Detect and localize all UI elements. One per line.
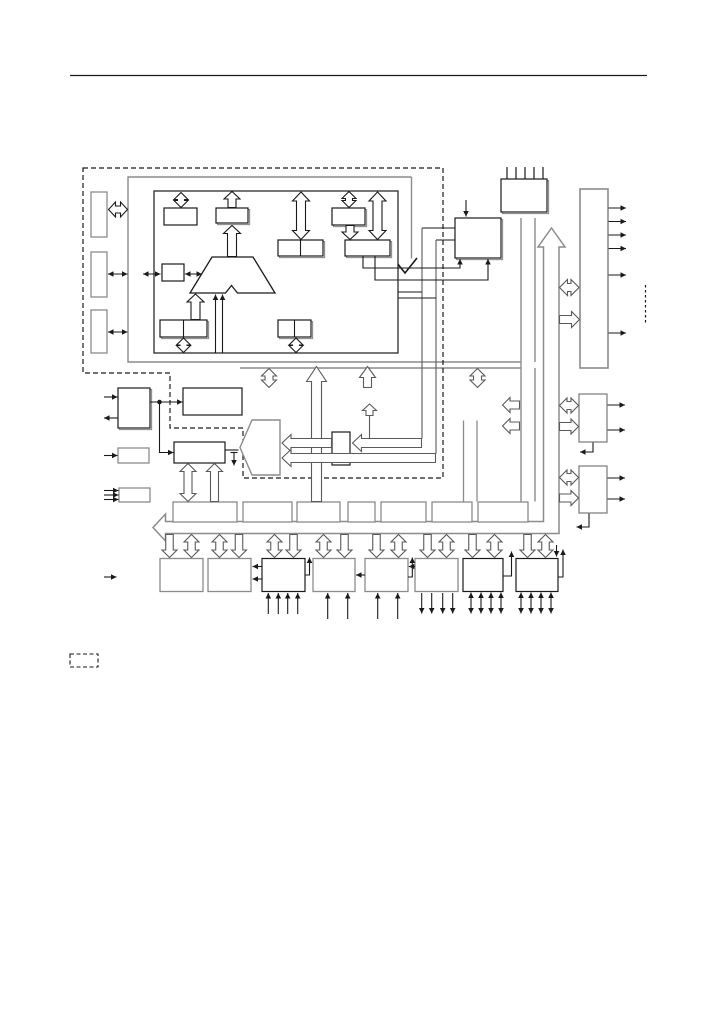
peripheral-block-3: [262, 559, 305, 592]
control-small-box: [162, 264, 184, 281]
legend-dashed-box: [70, 654, 98, 667]
port3-in-arrow: [560, 491, 579, 506]
blk8-dbl-arrow: [538, 535, 553, 558]
small-box-o: [119, 488, 150, 502]
block-diagram: [0, 0, 717, 1013]
blk1-dbl-arrow: [184, 535, 199, 558]
blk8-down-in-arrow-head: [554, 551, 560, 557]
mem2-link-arrow-2-head-start: [143, 271, 149, 277]
tall-port-out-4-head: [621, 246, 627, 252]
blk5-dbl-arrow: [391, 535, 406, 558]
blk3-pin-1-head: [266, 593, 272, 599]
tall-port-out-1-head: [621, 205, 627, 211]
port3-out-1-head: [620, 475, 626, 481]
bus-register-4: [348, 502, 375, 522]
small-box-n: [118, 448, 149, 463]
port3-dbl-arrow: [560, 470, 579, 485]
mem3-link-arrow-head: [122, 329, 128, 335]
bus-register-1: [173, 502, 237, 522]
register-box-b: [216, 208, 248, 223]
tall-port-out-3-head: [621, 232, 627, 238]
blk5-bent-up-arrow-head: [410, 558, 416, 564]
blk2-in-arrow: [232, 535, 247, 558]
tall-port-dbl-arrow: [560, 280, 580, 296]
blk7-pin-1-head: [468, 608, 474, 614]
blk4-in-arrow: [337, 535, 352, 558]
left-mem-block-1: [91, 192, 107, 237]
blk7-dbl-arrow: [487, 535, 502, 558]
right-tall-port-block: [580, 189, 608, 368]
q-up-arrow: [360, 367, 376, 388]
blk8-pin-2-head-start: [528, 593, 534, 599]
blk8-pin-1-head-start: [518, 593, 524, 599]
blk7-bent-up-arrow-head: [509, 552, 515, 558]
bus-register-2: [243, 502, 292, 522]
blk7-pin-3-head: [488, 608, 494, 614]
k-to-m-arrow: [160, 402, 174, 453]
peripheral-block-1: [160, 559, 203, 592]
blk5-to-blk4-arrow-head: [356, 572, 362, 578]
blk4-dbl-arrow: [316, 535, 331, 558]
peripheral-block-5: [365, 559, 408, 592]
blk7-pin-2-head-start: [478, 593, 484, 599]
peripheral-block-6: [415, 559, 458, 592]
blk5-pin-1-head: [375, 593, 381, 599]
blk7-pin-4-head-start: [498, 593, 504, 599]
junction-dot: [157, 400, 162, 405]
port3-out-2-head: [620, 496, 626, 502]
cpu-rail-up-arrow: [307, 367, 327, 502]
port3-bent-arrow-head: [577, 524, 583, 530]
blk6-pin-1-head: [419, 608, 425, 614]
port2-dbl-arrow: [560, 398, 579, 413]
k-to-m-arrow-head: [168, 450, 174, 456]
blk6-pin-3-head: [440, 608, 446, 614]
blk7-pin-1-head-start: [468, 593, 474, 599]
peripheral-block-7: [463, 559, 503, 592]
blk6-pin-2-head: [429, 608, 435, 614]
n-in-arrow-head: [112, 453, 118, 459]
o-in-arrow-2-head: [113, 492, 119, 498]
blk8-bent-up-arrow-head: [560, 550, 566, 556]
blk4-pin-1-head: [325, 593, 331, 599]
left-mem-block-2: [91, 252, 107, 297]
q-feed-arrow: [363, 404, 377, 416]
port2-in-arrow: [560, 419, 579, 434]
bus-register-6: [432, 502, 472, 522]
tall-port-out-2-head: [621, 219, 627, 225]
blk6-pin-4-head: [450, 608, 456, 614]
port2-out-2-head: [620, 427, 626, 433]
mem2-link-arrow-1-head: [122, 271, 128, 277]
mux-block: [240, 420, 280, 475]
register-box-f: [332, 208, 365, 225]
datasheet-page: [0, 0, 717, 1013]
blk1-ext-in-arrow-head: [111, 574, 117, 580]
peripheral-block-8: [516, 559, 558, 592]
port-block-3: [579, 466, 607, 513]
mem3-link-arrow-head-start: [108, 329, 114, 335]
port3-bent-arrow: [577, 514, 590, 528]
top-port-pins: [507, 167, 543, 179]
blk5-in-arrow: [369, 535, 384, 558]
port-block-2: [579, 394, 607, 442]
blk6-dbl-arrow: [439, 535, 454, 558]
register-box-a: [164, 208, 197, 225]
osc-out-arrow-head: [104, 415, 110, 421]
blk3-to-blk2-arrow-1-head: [253, 564, 259, 570]
mem2-link-arrow-1-head-start: [108, 271, 114, 277]
m-bottom-up-arrow: [207, 464, 223, 502]
left-mem-block-3: [91, 310, 107, 353]
blk6-to-blk5-arrow-head: [409, 564, 415, 570]
control-box-m: [174, 442, 225, 463]
blk3-in-arrow: [286, 535, 301, 558]
port2-bent-arrow: [580, 443, 593, 453]
blk8-pin-4-head-start: [548, 593, 554, 599]
tall-port-out-6-head: [621, 330, 627, 336]
port2-out-1-head: [620, 402, 626, 408]
mux-in-arrow-3: [282, 450, 436, 467]
p-link-arrow: [262, 369, 277, 388]
mux-in-arrow-2: [353, 435, 422, 452]
blk6-in-arrow: [420, 535, 435, 558]
blk7-in-arrow: [465, 535, 480, 558]
osc-block-k: [118, 388, 150, 428]
blk7-pin-2-head: [478, 608, 484, 614]
o-in-arrow-3-head: [113, 497, 119, 503]
blk8-pin-1-head: [518, 608, 524, 614]
top-port-block: [501, 179, 547, 212]
blk8-pin-4-head: [548, 608, 554, 614]
blk3-to-blk2-arrow-2-head: [253, 576, 259, 582]
m-small-down-arrow-head: [231, 460, 237, 466]
blk2-dbl-arrow: [212, 535, 227, 558]
blk4-pin-2-head: [345, 593, 351, 599]
blk8-pin-3-head: [538, 608, 544, 614]
blk8-in-arrow: [520, 535, 535, 558]
peripheral-block-4: [313, 559, 355, 592]
mux-in-arrow-1: [282, 435, 332, 452]
j-in-arrow-2: [503, 419, 520, 434]
bus-register-5: [381, 502, 426, 522]
blk3-dbl-arrow: [267, 535, 282, 558]
osc-in-arrow-head: [112, 394, 118, 400]
blk3-bent-up-arrow-head: [307, 558, 313, 564]
port2-bent-arrow-head: [580, 449, 586, 455]
interrupt-block: [455, 218, 501, 258]
blk7-pin-3-head-start: [488, 593, 494, 599]
blk8-pin-3-head-start: [538, 593, 544, 599]
m-bottom-dbl-arrow: [180, 464, 196, 502]
blk8-pin-2-head: [528, 608, 534, 614]
tall-port-in-arrow: [560, 312, 580, 328]
mem1-cpu-link-arrow: [109, 202, 128, 217]
blk5-pin-2-head: [395, 593, 401, 599]
blk3-pin-3-head: [285, 593, 291, 599]
bus-register-3: [297, 502, 340, 522]
tall-port-out-5-head: [621, 272, 627, 278]
k-to-l-arrow-head: [177, 399, 183, 405]
bus-register-7: [478, 502, 528, 522]
blk3-pin-4-head: [295, 593, 301, 599]
control-box-l: [183, 388, 242, 415]
j-top-link-arrow: [470, 369, 485, 388]
blk7-pin-4-head: [498, 608, 504, 614]
o-in-arrow-1-head: [113, 488, 119, 494]
register-box-g: [345, 240, 390, 256]
blk3-pin-2-head: [276, 593, 282, 599]
peripheral-block-2: [208, 559, 251, 592]
reset-stub-arrow-head: [463, 211, 469, 217]
j-in-arrow-1: [503, 398, 520, 413]
